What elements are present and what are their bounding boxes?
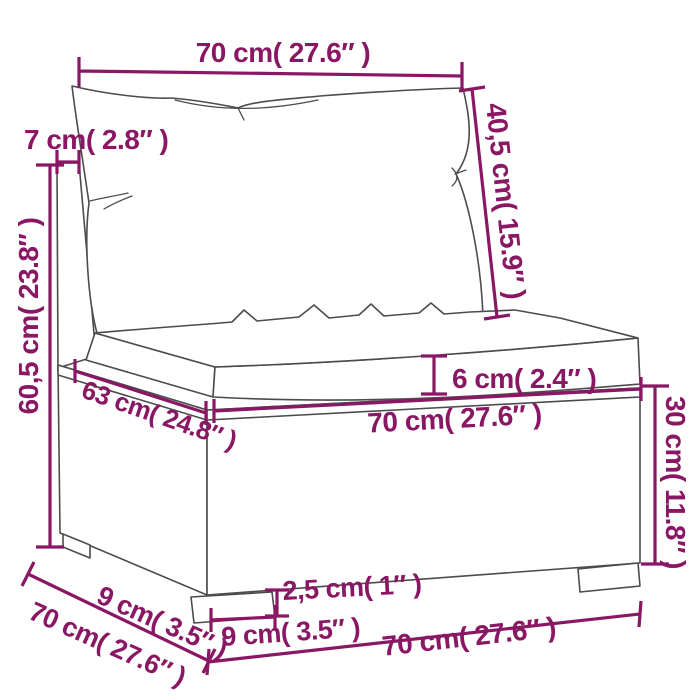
dim-pillow-width-label: 70 cm( 27.6″ ) (196, 37, 371, 68)
leg-front-right (578, 563, 640, 592)
dim-pillow-width: 70 cm( 27.6″ ) (79, 37, 462, 90)
dim-back-thickness-label: 7 cm( 2.8″ ) (24, 124, 168, 155)
dimension-diagram: 70 cm( 27.6″ ) 7 cm( 2.8″ ) 40,5 cm( 15.… (0, 0, 700, 700)
dim-total-height-label: 60,5 cm( 23.8″ ) (13, 218, 44, 415)
dim-total-height: 60,5 cm( 23.8″ ) (13, 165, 64, 547)
sofa-illustration (57, 86, 640, 623)
dim-leg-height-label: 2,5 cm( 1″ ) (282, 569, 422, 606)
dim-base-height: 30 cm( 11.8″ ) (641, 386, 691, 569)
dim-back-height-label: 40,5 cm( 15.9″ ) (480, 101, 531, 300)
dim-leg-height: 2,5 cm( 1″ ) (265, 569, 422, 616)
dim-base-height-label: 30 cm( 11.8″ ) (660, 396, 691, 569)
dim-base-width-label: 70 cm( 27.6″ ) (380, 611, 557, 662)
dim-cushion-thickness-label: 6 cm( 2.4″ ) (452, 363, 596, 394)
diagram-canvas: 70 cm( 27.6″ ) 7 cm( 2.8″ ) 40,5 cm( 15.… (0, 0, 700, 700)
